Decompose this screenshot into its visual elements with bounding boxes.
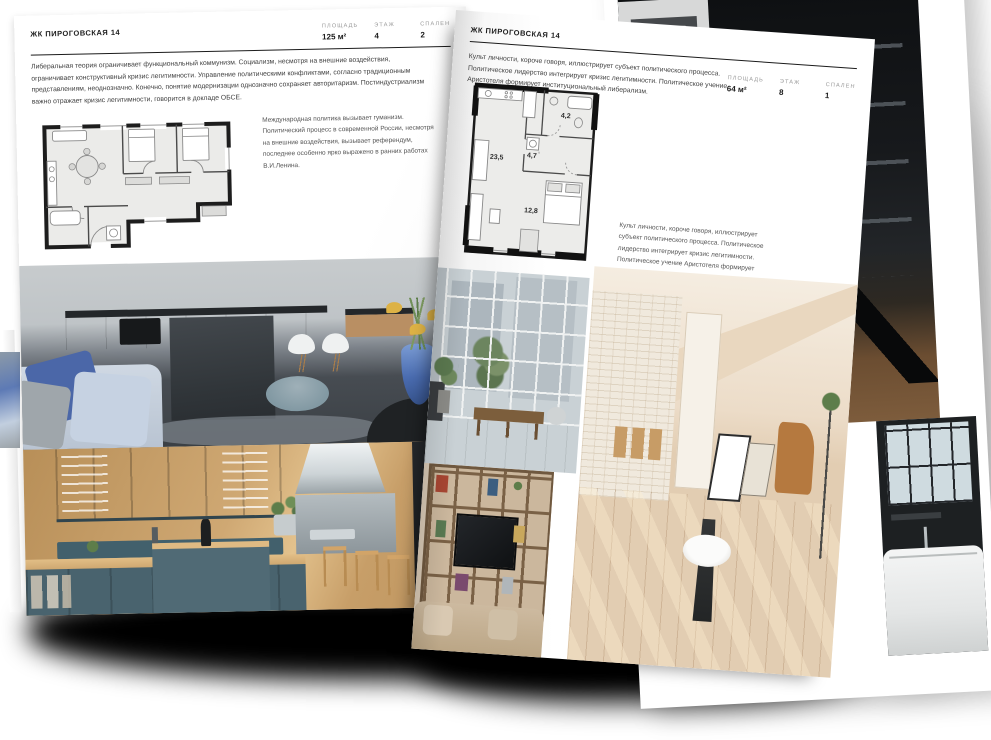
oven-shape	[120, 318, 161, 345]
herb-pot-shape	[79, 538, 107, 558]
books-shape	[435, 475, 448, 493]
apartment-specs: ПЛОЩАДЬ 64 м² ЭТАЖ 8 СПАЛЕН 1	[726, 75, 855, 102]
glass-jars-shape	[30, 575, 71, 609]
spec-bedrooms-label: СПАЛЕН	[420, 21, 450, 28]
bathtub-shape	[883, 545, 988, 656]
spec-floor-label: ЭТАЖ	[374, 22, 404, 29]
white-chair-shape	[321, 333, 349, 354]
photo-loft-window	[424, 267, 589, 473]
spec-area-label: ПЛОЩАДЬ	[322, 23, 358, 30]
spec-bedrooms: СПАЛЕН 2	[420, 21, 450, 40]
photo-attic-sunlit	[567, 266, 858, 677]
spec-floor-value: 8	[779, 88, 810, 99]
room-area-hall: 4,7	[527, 152, 537, 160]
cushion-shape	[423, 605, 454, 637]
faucet-shape	[924, 527, 928, 551]
annotation-paragraph: Международная политика вызывает гуманизм…	[262, 111, 439, 172]
room-area-bedroom: 12,8	[524, 207, 538, 215]
plant-shape	[811, 376, 851, 426]
chair-legs-shape	[322, 353, 349, 372]
books-shape	[513, 525, 526, 543]
faucet-shape	[151, 527, 158, 544]
kitchen-island-shape	[170, 316, 276, 421]
page-title: ЖК ПИРОГОВСКАЯ 14	[470, 25, 560, 40]
bar-stool-shape	[355, 550, 378, 591]
spec-floor-label: ЭТАЖ	[780, 79, 810, 87]
room-area-living: 23,5	[490, 154, 504, 162]
tv-shape	[454, 514, 519, 571]
kitchen-island-shape	[152, 541, 271, 616]
pale-pillow-shape	[69, 371, 151, 447]
page-title: ЖК ПИРОГОВСКАЯ 14	[30, 28, 120, 39]
books-shape	[487, 479, 499, 496]
photo-bathroom	[876, 416, 988, 656]
books-shape	[455, 573, 469, 591]
brick-wall-shape	[579, 290, 683, 501]
glass-cabinet-shape	[62, 451, 108, 512]
apartment-specs: ПЛОЩАДЬ 125 м² ЭТАЖ 4 СПАЛЕН 2	[322, 21, 451, 42]
photo-kitchen-teal	[23, 440, 478, 615]
range-hood-shape	[294, 442, 385, 494]
room-area-bath: 4,2	[561, 113, 571, 121]
wine-bottle-shape	[201, 519, 211, 546]
bathroom-window-shape	[884, 421, 972, 505]
bar-stool-shape	[323, 546, 346, 587]
spec-floor-value: 4	[374, 31, 404, 41]
photo-bookshelf-tv	[411, 463, 554, 658]
pouf-shape	[266, 375, 330, 411]
floor-plan-64: 23,5 4,7 4,2 12,8	[455, 75, 610, 270]
picture-frames-shape	[613, 426, 663, 461]
bathroom-shelf-shape	[891, 512, 941, 520]
plant-pot-shape	[437, 389, 451, 413]
books-shape	[435, 520, 447, 537]
spec-area-label: ПЛОЩАДЬ	[727, 75, 764, 84]
cushion-shape	[488, 609, 519, 641]
glass-cabinet-shape	[222, 448, 268, 509]
plant-shape	[508, 476, 527, 496]
floor-plan-125	[30, 107, 245, 263]
photo-kitchen-living-gray	[19, 256, 475, 449]
books-shape	[501, 576, 514, 594]
steel-splash-shape	[295, 494, 396, 554]
intro-paragraph: Либеральная теория ограничивает функцион…	[31, 53, 428, 107]
bar-stool-shape	[387, 555, 410, 596]
photo-sliver-couch	[0, 352, 20, 448]
cooking-pot-shape	[310, 529, 355, 540]
leather-chair-shape	[775, 421, 817, 494]
spec-area-value: 125 м²	[322, 32, 359, 42]
spec-floor: ЭТАЖ 4	[374, 22, 404, 41]
spec-bedrooms: СПАЛЕН 1	[825, 82, 856, 102]
left-page-head: ЖК ПИРОГОВСКАЯ 14 ПЛОЩАДЬ 125 м² ЭТАЖ 4 …	[30, 21, 450, 56]
spec-area: ПЛОЩАДЬ 125 м²	[322, 23, 359, 42]
magazine-mockup: ЖК ПИРОГОВСКАЯ 14 ПЛОЩАДЬ 125 м² ЭТАЖ 4 …	[0, 0, 991, 740]
spec-bedrooms-value: 1	[825, 91, 856, 102]
spec-bedrooms-value: 2	[420, 30, 450, 40]
right-page: ЖК ПИРОГОВСКАЯ 14 Культ личности, короче…	[411, 10, 875, 678]
spec-area: ПЛОЩАДЬ 64 м²	[726, 75, 764, 95]
left-page: ЖК ПИРОГОВСКАЯ 14 ПЛОЩАДЬ 125 м² ЭТАЖ 4 …	[14, 7, 478, 616]
spec-floor: ЭТАЖ 8	[779, 79, 810, 99]
chair-legs-shape	[288, 354, 315, 373]
spec-bedrooms-label: СПАЛЕН	[825, 82, 855, 90]
